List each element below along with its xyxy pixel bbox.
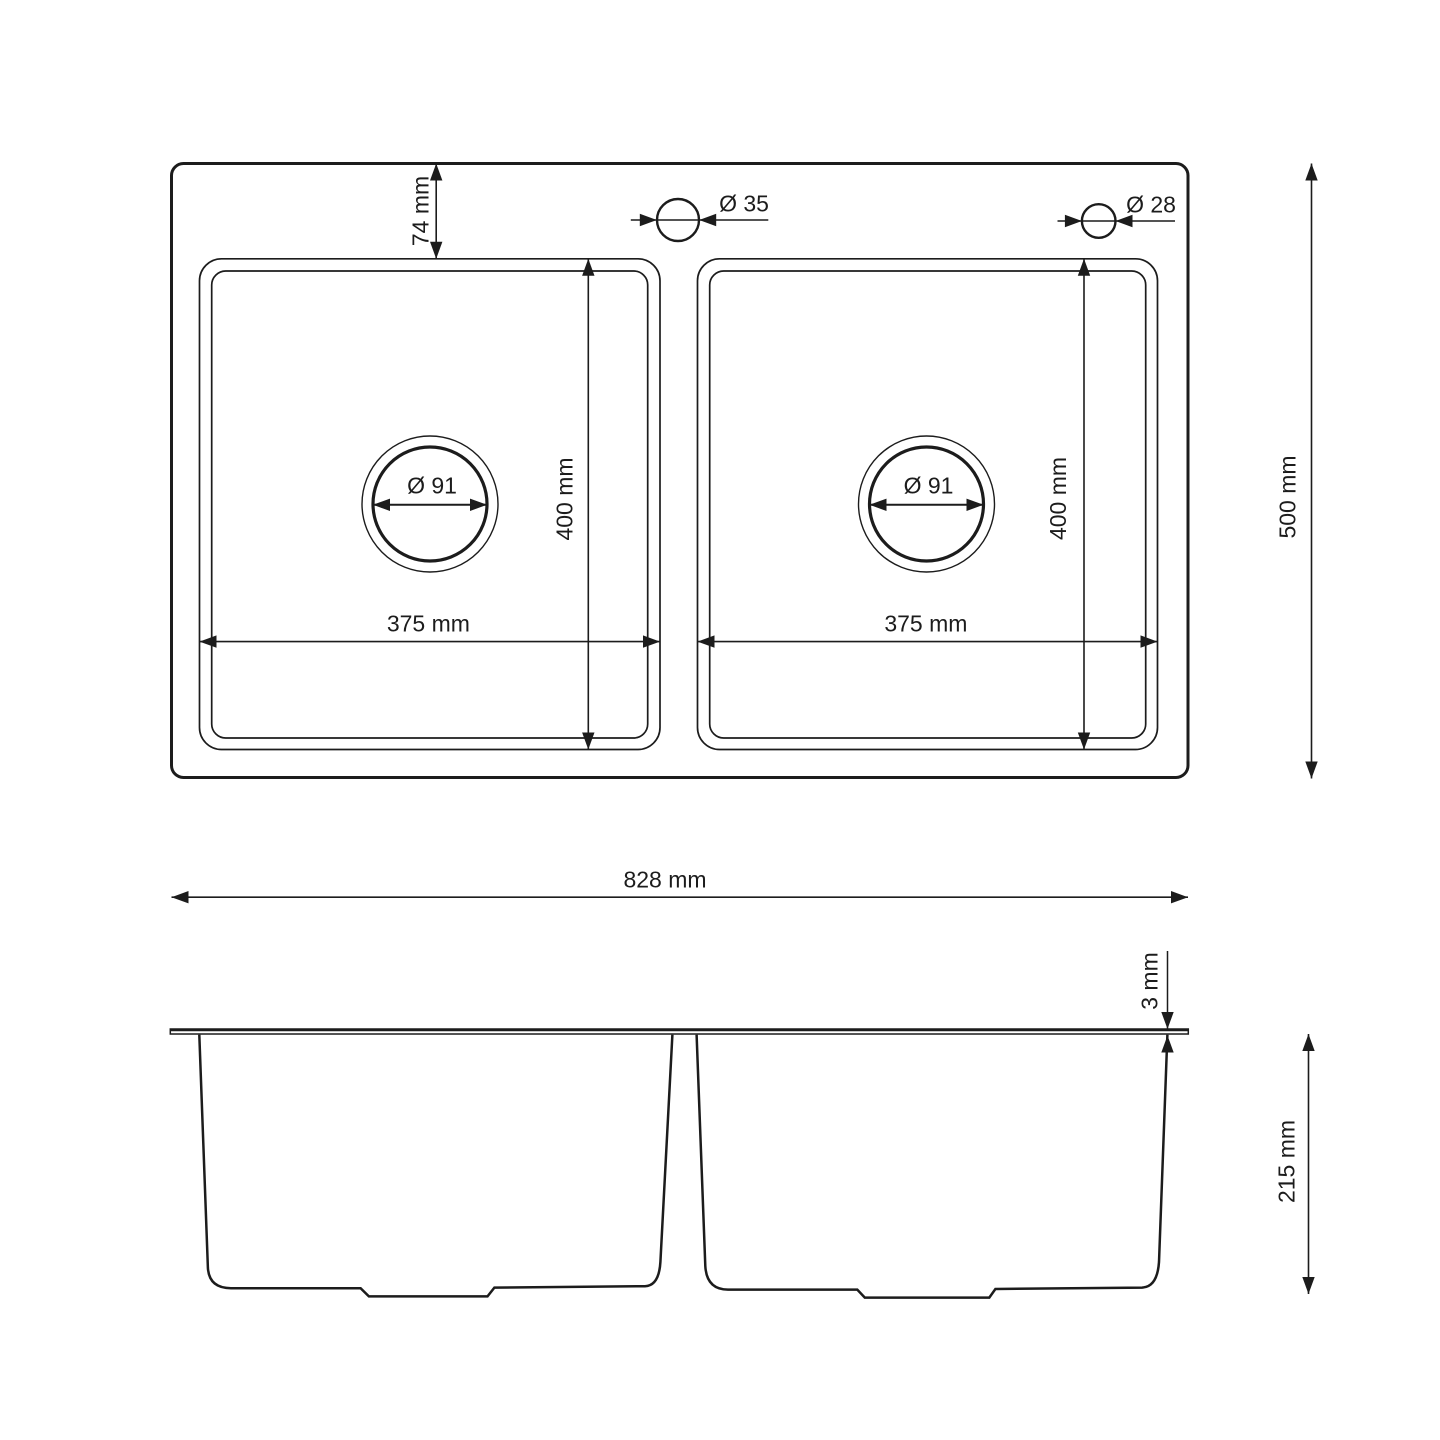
svg-text:Ø 28: Ø 28: [1126, 192, 1176, 218]
svg-text:500 mm: 500 mm: [1275, 455, 1301, 538]
svg-text:Ø 35: Ø 35: [719, 191, 769, 217]
svg-text:828 mm: 828 mm: [623, 867, 706, 893]
svg-text:375 mm: 375 mm: [884, 611, 967, 637]
svg-text:400 mm: 400 mm: [552, 457, 578, 540]
svg-text:215 mm: 215 mm: [1274, 1120, 1300, 1203]
svg-text:Ø 91: Ø 91: [904, 473, 954, 499]
svg-text:375 mm: 375 mm: [387, 611, 470, 637]
svg-text:3 mm: 3 mm: [1136, 952, 1162, 1010]
svg-text:400 mm: 400 mm: [1045, 457, 1071, 540]
svg-text:Ø 91: Ø 91: [407, 473, 457, 499]
svg-text:74 mm: 74 mm: [408, 176, 434, 246]
